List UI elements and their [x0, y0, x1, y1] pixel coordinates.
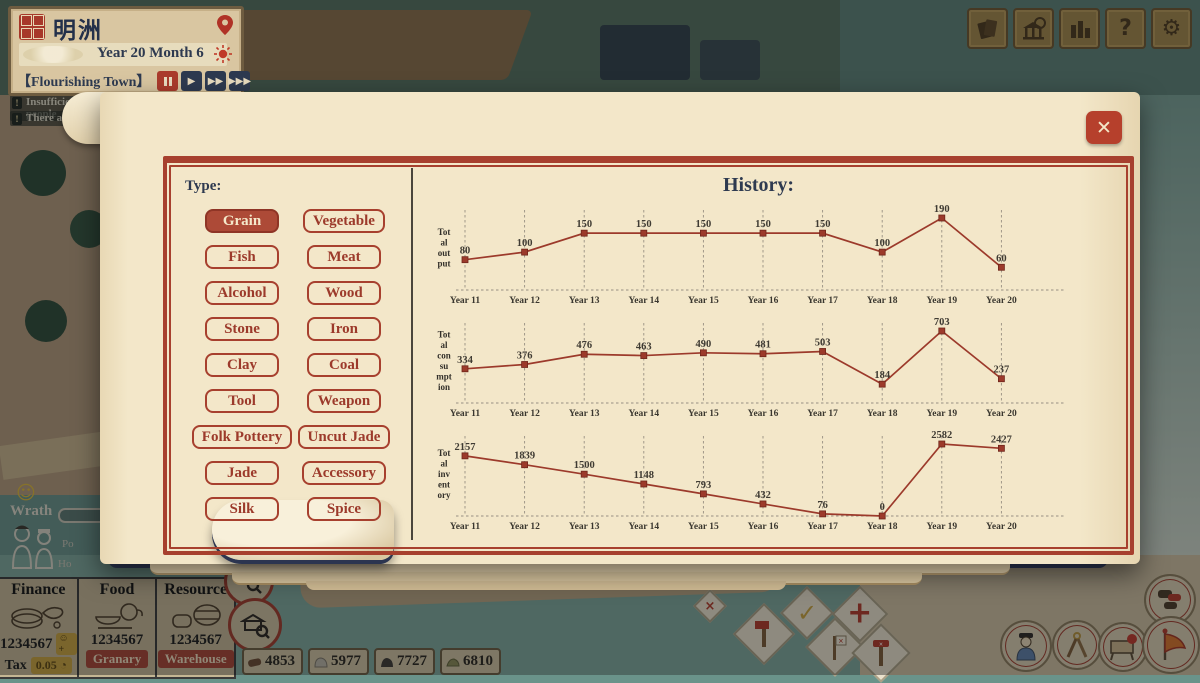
- chart-total-inventory: Year 11Year 12Year 13Year 14Year 15Year …: [428, 428, 1068, 541]
- svg-text:Year 11: Year 11: [450, 409, 480, 419]
- svg-text:476: 476: [576, 340, 592, 351]
- svg-text:inv: inv: [438, 469, 451, 479]
- svg-text:out: out: [438, 248, 451, 258]
- town-name: 明洲: [53, 11, 103, 45]
- svg-text:Year 15: Year 15: [688, 296, 719, 306]
- svg-text:481: 481: [755, 340, 771, 351]
- svg-text:Year 13: Year 13: [569, 409, 600, 419]
- svg-text:Year 12: Year 12: [509, 522, 540, 532]
- svg-text:150: 150: [696, 219, 712, 230]
- type-alcohol[interactable]: Alcohol: [205, 281, 279, 305]
- svg-text:Year 15: Year 15: [688, 522, 719, 532]
- svg-text:ion: ion: [438, 382, 450, 392]
- svg-text:150: 150: [755, 219, 771, 230]
- svg-text:Tot: Tot: [438, 448, 451, 458]
- svg-text:Year 19: Year 19: [926, 296, 957, 306]
- svg-text:Year 16: Year 16: [748, 522, 779, 532]
- svg-text:190: 190: [934, 204, 950, 215]
- divider: [411, 168, 413, 540]
- svg-text:Year 14: Year 14: [628, 409, 659, 419]
- svg-text:100: 100: [517, 238, 533, 249]
- svg-text:Year 14: Year 14: [628, 296, 659, 306]
- svg-text:80: 80: [460, 246, 471, 257]
- svg-text:mpt: mpt: [436, 372, 452, 382]
- svg-text:Year 18: Year 18: [867, 409, 898, 419]
- svg-text:76: 76: [817, 500, 828, 511]
- svg-text:184: 184: [874, 370, 891, 381]
- svg-text:150: 150: [815, 219, 831, 230]
- svg-text:Tot: Tot: [438, 227, 451, 237]
- pause-button[interactable]: [157, 71, 178, 91]
- type-weapon[interactable]: Weapon: [307, 389, 381, 413]
- svg-text:2157: 2157: [455, 442, 476, 453]
- svg-text:Year 11: Year 11: [450, 296, 480, 306]
- history-label: History:: [723, 174, 794, 197]
- type-wood[interactable]: Wood: [307, 281, 381, 305]
- svg-text:2582: 2582: [931, 430, 952, 441]
- svg-text:Tot: Tot: [438, 330, 451, 340]
- type-fish[interactable]: Fish: [205, 245, 279, 269]
- svg-text:490: 490: [696, 339, 712, 350]
- svg-text:334: 334: [457, 355, 474, 366]
- svg-text:ent: ent: [438, 479, 450, 489]
- svg-text:100: 100: [874, 238, 890, 249]
- svg-text:Year 20: Year 20: [986, 409, 1017, 419]
- close-icon: ✕: [1096, 117, 1112, 139]
- type-vegetable[interactable]: Vegetable: [303, 209, 385, 233]
- svg-text:Year 16: Year 16: [748, 409, 779, 419]
- svg-text:con: con: [437, 351, 451, 361]
- svg-text:Year 16: Year 16: [748, 296, 779, 306]
- type-meat[interactable]: Meat: [307, 245, 381, 269]
- type-grain[interactable]: Grain: [205, 209, 279, 233]
- chart-total-output: Year 11Year 12Year 13Year 14Year 15Year …: [428, 202, 1068, 315]
- type-iron[interactable]: Iron: [307, 317, 381, 341]
- type-folk-pottery[interactable]: Folk Pottery: [192, 425, 292, 449]
- svg-text:2427: 2427: [991, 434, 1012, 445]
- type-button-grid: Grain Vegetable Fish Meat Alcohol Wood S…: [191, 209, 399, 521]
- svg-text:Year 19: Year 19: [926, 409, 957, 419]
- svg-text:al: al: [440, 458, 448, 468]
- svg-text:Year 18: Year 18: [867, 296, 898, 306]
- type-label: Type:: [185, 178, 221, 195]
- svg-text:Year 19: Year 19: [926, 522, 957, 532]
- page-stack: [306, 581, 786, 590]
- svg-text:Year 12: Year 12: [509, 409, 540, 419]
- svg-text:Year 14: Year 14: [628, 522, 659, 532]
- chart-total-consumption: Year 11Year 12Year 13Year 14Year 15Year …: [428, 315, 1068, 428]
- svg-text:Year 20: Year 20: [986, 522, 1017, 532]
- svg-text:Year 17: Year 17: [807, 296, 838, 306]
- svg-text:1148: 1148: [634, 470, 654, 481]
- svg-text:Year 18: Year 18: [867, 522, 898, 532]
- town-epithet: 【Flourishing Town】: [17, 71, 150, 91]
- svg-text:1839: 1839: [514, 451, 535, 462]
- type-tool[interactable]: Tool: [205, 389, 279, 413]
- flower-sketch: [23, 46, 83, 63]
- svg-text:376: 376: [517, 350, 533, 361]
- svg-text:1500: 1500: [574, 460, 595, 471]
- svg-text:Year 13: Year 13: [569, 522, 600, 532]
- type-coal[interactable]: Coal: [307, 353, 381, 377]
- svg-text:237: 237: [994, 365, 1010, 376]
- svg-text:Year 15: Year 15: [688, 409, 719, 419]
- type-clay[interactable]: Clay: [205, 353, 279, 377]
- fast-forward-2x-button[interactable]: ▶▶: [205, 71, 226, 91]
- svg-text:463: 463: [636, 342, 652, 353]
- svg-text:su: su: [440, 361, 449, 371]
- type-spice[interactable]: Spice: [307, 497, 381, 521]
- svg-text:Year 11: Year 11: [450, 522, 480, 532]
- svg-text:Year 13: Year 13: [569, 296, 600, 306]
- svg-text:Year 20: Year 20: [986, 296, 1017, 306]
- svg-text:Year 17: Year 17: [807, 522, 838, 532]
- svg-text:ory: ory: [438, 490, 451, 500]
- svg-text:793: 793: [696, 480, 712, 491]
- svg-text:0: 0: [880, 502, 885, 513]
- location-pin-icon[interactable]: [217, 15, 233, 35]
- charts-area: Year 11Year 12Year 13Year 14Year 15Year …: [428, 202, 1068, 541]
- svg-text:al: al: [440, 238, 448, 248]
- sun-icon: [214, 45, 232, 63]
- svg-text:Year 17: Year 17: [807, 409, 838, 419]
- type-jade[interactable]: Jade: [205, 461, 279, 485]
- svg-text:Year 12: Year 12: [509, 296, 540, 306]
- play-button[interactable]: ▶: [181, 71, 202, 91]
- svg-text:60: 60: [996, 253, 1007, 264]
- close-button[interactable]: ✕: [1086, 111, 1122, 144]
- svg-text:432: 432: [755, 490, 771, 501]
- fast-forward-3x-button[interactable]: ▶▶▶: [229, 71, 250, 91]
- town-info-panel: 明洲 Year 20 Month 6 【Flourishing Town】 ▶ …: [8, 6, 244, 96]
- svg-text:put: put: [437, 259, 450, 269]
- svg-text:al: al: [440, 340, 448, 350]
- svg-text:503: 503: [815, 337, 831, 348]
- date-label: Year 20 Month 6: [97, 45, 204, 62]
- town-seal-icon: [19, 14, 45, 40]
- type-uncut-jade[interactable]: Uncut Jade: [298, 425, 391, 449]
- svg-text:150: 150: [636, 219, 652, 230]
- type-accessory[interactable]: Accessory: [302, 461, 386, 485]
- svg-text:703: 703: [934, 317, 950, 328]
- svg-text:150: 150: [576, 219, 592, 230]
- type-stone[interactable]: Stone: [205, 317, 279, 341]
- type-silk[interactable]: Silk: [205, 497, 279, 521]
